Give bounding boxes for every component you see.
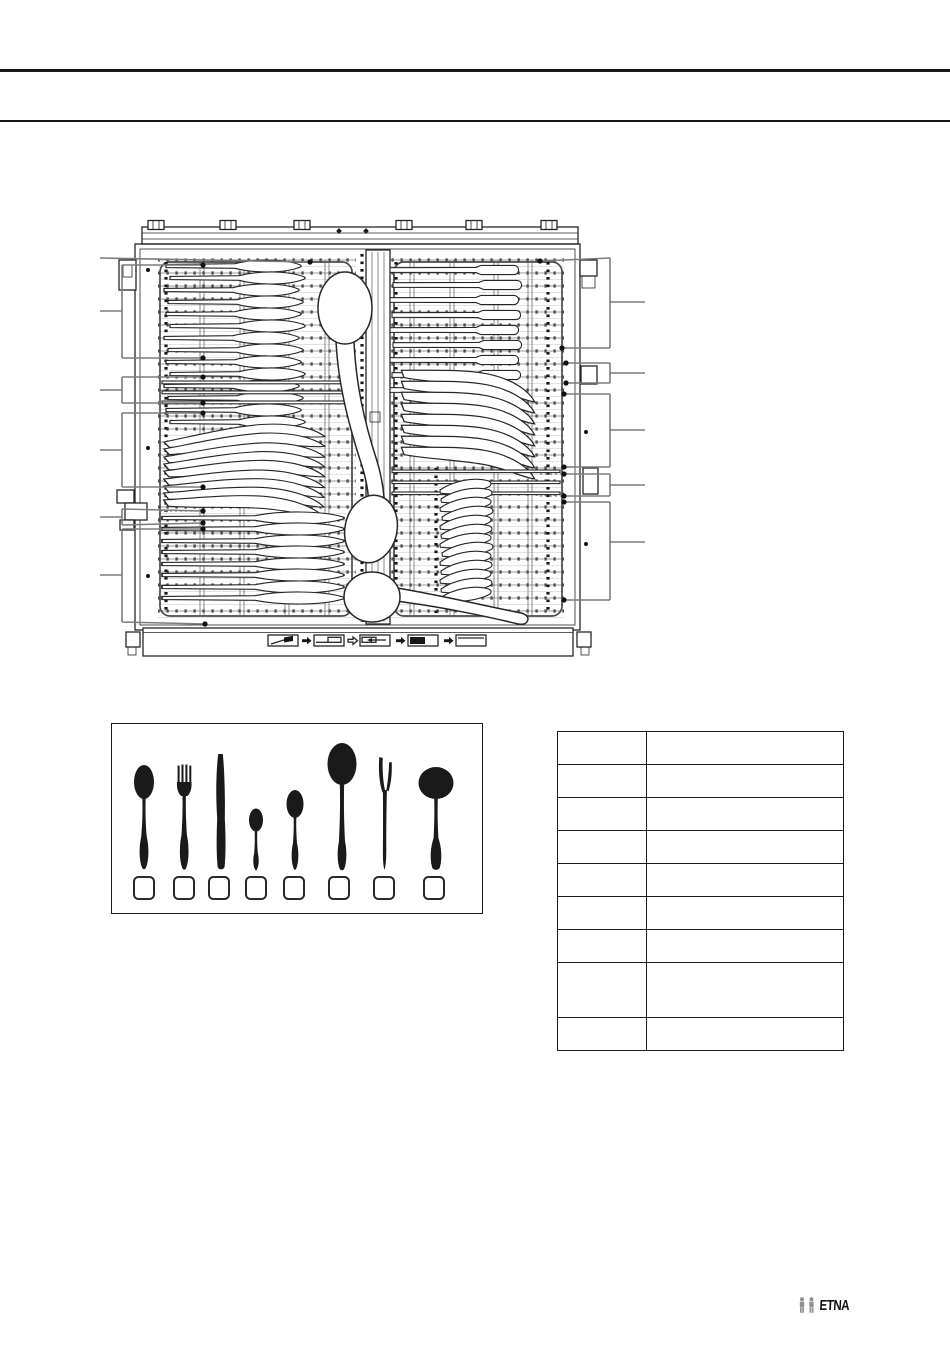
- table-row: [558, 764, 843, 797]
- table-row: [558, 929, 843, 962]
- checkbox-table-knife: [209, 877, 229, 899]
- table-spoon-icon: [134, 765, 154, 869]
- table-cell: [558, 1018, 647, 1050]
- table-cell: [558, 831, 647, 863]
- checkbox-serving-spoon: [329, 877, 349, 899]
- table-cell: [647, 765, 843, 797]
- callout-right-5: [561, 499, 645, 602]
- table-cell: [558, 864, 647, 896]
- table-row: [558, 896, 843, 929]
- dessert-spoon-icon: [287, 790, 304, 870]
- table-cell: [647, 864, 843, 896]
- brand-logo: ETNA: [797, 1294, 856, 1314]
- table-cell: [647, 831, 843, 863]
- callout-right-2: [563, 360, 645, 385]
- serving-fork-icon: [379, 757, 392, 870]
- table-cell: [647, 897, 843, 929]
- table-cell: [558, 798, 647, 830]
- checkbox-teaspoon: [246, 877, 266, 899]
- table-fork-icon: [177, 765, 192, 870]
- table-knife-icon: [216, 754, 225, 869]
- table-cell: [647, 732, 843, 764]
- checkbox-table-fork: [174, 877, 194, 899]
- teaspoon-icon: [249, 809, 263, 871]
- cutlery-legend-box: [111, 723, 483, 914]
- table-cell: [647, 1018, 843, 1050]
- callout-right-3: [561, 391, 645, 469]
- table-row: [558, 1017, 843, 1050]
- table-cell: [647, 930, 843, 962]
- table-row: [558, 962, 843, 1017]
- checkbox-ladle: [424, 877, 444, 899]
- brand-logo-text: ETNA: [819, 1298, 850, 1314]
- checkbox-serving-fork: [374, 877, 394, 899]
- table-row: [558, 863, 843, 896]
- table-cell: [558, 897, 647, 929]
- parts-table: [557, 731, 844, 1051]
- table-row: [558, 797, 843, 830]
- table-cell: [647, 963, 843, 1017]
- cutlery-drawer-diagram: [100, 218, 645, 668]
- checkbox-table-spoon: [134, 877, 154, 899]
- table-cell: [647, 798, 843, 830]
- logo-figures-icon: [797, 1296, 819, 1314]
- header-rule-top: [0, 69, 950, 72]
- cutlery-drawer-illustration: [100, 218, 645, 668]
- header-rule-bottom: [0, 120, 950, 122]
- table-row: [558, 732, 843, 764]
- legend-checkboxes: [134, 877, 444, 899]
- ladle-icon: [419, 767, 454, 870]
- table-cell: [558, 732, 647, 764]
- checkbox-dessert-spoon: [284, 877, 304, 899]
- serving-spoon-icon: [328, 743, 357, 870]
- table-row: [558, 830, 843, 863]
- front-panel: [126, 628, 591, 656]
- bottom-right-teaspoon-stack: [439, 477, 493, 603]
- table-cell: [558, 930, 647, 962]
- table-cell: [558, 765, 647, 797]
- table-cell: [558, 963, 647, 1017]
